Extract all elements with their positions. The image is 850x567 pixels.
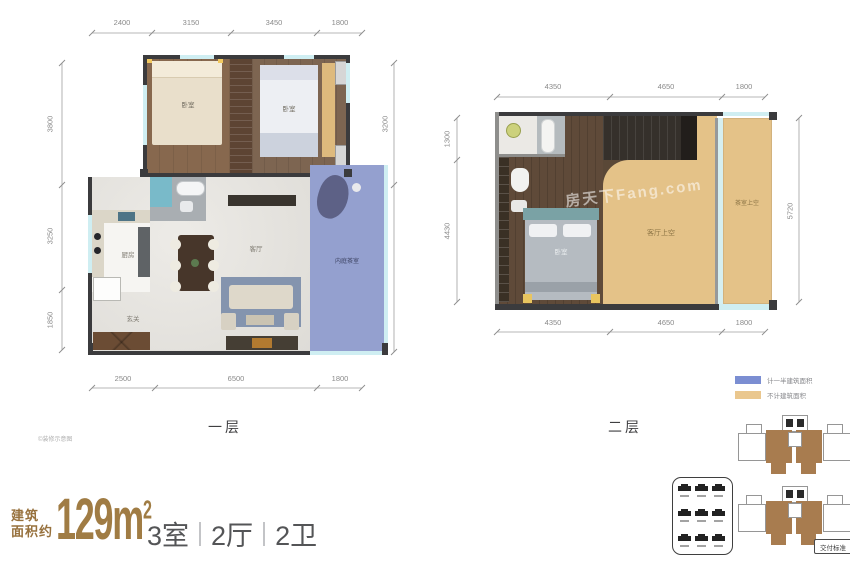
floor1-label: 一层 bbox=[208, 417, 242, 437]
building-icon bbox=[695, 534, 708, 543]
pillar bbox=[88, 343, 93, 355]
pillar bbox=[769, 300, 777, 310]
wing bbox=[746, 424, 762, 434]
wall bbox=[88, 351, 310, 355]
second-floor-plan: 客厅上空 卧室 茶室上空 bbox=[495, 112, 777, 312]
wall bbox=[495, 304, 719, 310]
building-number bbox=[680, 545, 689, 547]
wall bbox=[143, 55, 350, 59]
dim-label: 1800 bbox=[736, 318, 753, 327]
floorplan-sheet: 2400 3150 3450 1800 2500 6500 1800 3800 … bbox=[0, 0, 850, 567]
sofa bbox=[229, 285, 293, 309]
dim-label: 1850 bbox=[46, 312, 55, 329]
window bbox=[723, 112, 772, 116]
laundry-basket bbox=[506, 123, 521, 138]
staircase bbox=[230, 57, 252, 175]
building-number bbox=[680, 520, 689, 522]
dim-label: 4430 bbox=[443, 223, 452, 240]
building-icon bbox=[695, 509, 708, 518]
building-icon bbox=[678, 534, 691, 543]
kitchen-island bbox=[138, 227, 150, 277]
dim-label: 4650 bbox=[658, 318, 675, 327]
armchair bbox=[284, 313, 299, 330]
dim-label: 2400 bbox=[114, 18, 131, 27]
pillow bbox=[563, 224, 591, 237]
wing bbox=[738, 504, 766, 532]
pillar bbox=[769, 112, 777, 120]
room-label: 卧室 bbox=[555, 246, 568, 256]
wall bbox=[495, 112, 499, 308]
terrace-void-area bbox=[723, 118, 772, 304]
dim-label: 4350 bbox=[545, 82, 562, 91]
headboard bbox=[523, 208, 599, 220]
dim-label: 1800 bbox=[736, 82, 753, 91]
dim-label: 1800 bbox=[332, 18, 349, 27]
desk-bench bbox=[322, 63, 335, 157]
legend-label: 计一半建筑面积 bbox=[767, 375, 813, 385]
centerpiece bbox=[191, 259, 199, 267]
window bbox=[719, 304, 772, 310]
armchair bbox=[221, 313, 236, 330]
sink bbox=[180, 201, 193, 212]
first-floor-plan: 卧室 卧室 内庭茶室 厨房 bbox=[88, 55, 388, 355]
fridge bbox=[93, 277, 121, 301]
kitchen-sink bbox=[118, 212, 135, 221]
pillar bbox=[140, 169, 148, 177]
living-void-area bbox=[697, 116, 717, 160]
building-number bbox=[680, 495, 689, 497]
building-icon bbox=[678, 484, 691, 493]
core bbox=[788, 503, 802, 518]
delivery-standard-tag: 交付标准 bbox=[814, 539, 850, 554]
dim-label: 4650 bbox=[658, 82, 675, 91]
building-number bbox=[697, 520, 706, 522]
building-number bbox=[697, 545, 706, 547]
baths-count: 2卫 bbox=[275, 514, 317, 553]
pillar bbox=[344, 169, 352, 177]
floor-lamp bbox=[591, 294, 600, 303]
building-icon bbox=[678, 509, 691, 518]
wing bbox=[827, 424, 843, 434]
dim-label: 3250 bbox=[46, 228, 55, 245]
divider bbox=[263, 522, 265, 546]
bathtub bbox=[176, 181, 205, 196]
room-label: 内庭茶室 bbox=[335, 256, 359, 265]
area-prefix-line2: 面积约 bbox=[11, 524, 53, 540]
room-label: 玄关 bbox=[127, 313, 140, 323]
legend: 计一半建筑面积 不计建筑面积 bbox=[735, 373, 813, 401]
dim-label: 5720 bbox=[786, 203, 795, 220]
dim-label: 4350 bbox=[545, 318, 562, 327]
dim-label: 3450 bbox=[266, 18, 283, 27]
building-icon bbox=[712, 534, 725, 543]
window bbox=[180, 55, 214, 59]
wing bbox=[827, 495, 843, 505]
tv-console bbox=[228, 195, 296, 206]
wing bbox=[746, 495, 762, 505]
legend-swatch-no-area bbox=[735, 391, 761, 399]
kitchen-counter bbox=[92, 223, 104, 277]
wing bbox=[823, 433, 850, 461]
room-label: 茶室上空 bbox=[735, 198, 759, 207]
window bbox=[143, 85, 147, 145]
area-number: 129m bbox=[56, 487, 143, 552]
building-number bbox=[697, 495, 706, 497]
dim-label: 2500 bbox=[115, 374, 132, 383]
dim-label: 1300 bbox=[443, 131, 452, 148]
rooms-count: 3室 bbox=[147, 514, 189, 553]
bathtub bbox=[541, 119, 555, 153]
legend-label: 不计建筑面积 bbox=[767, 390, 806, 400]
dim-label: 3150 bbox=[183, 18, 200, 27]
unit-layout: 3室 2厅 2卫 bbox=[147, 514, 317, 553]
entry-cabinet bbox=[93, 332, 150, 350]
keyplate-upper bbox=[738, 415, 850, 479]
area-value: 129m2 bbox=[56, 486, 151, 553]
pillow bbox=[529, 224, 557, 237]
building-icon bbox=[712, 484, 725, 493]
highlighted-unit bbox=[771, 463, 786, 474]
stair-landing bbox=[681, 116, 697, 160]
building-icon bbox=[695, 484, 708, 493]
dining-chairs bbox=[170, 239, 181, 250]
tv-panel bbox=[252, 338, 272, 348]
dim-label: 1800 bbox=[332, 374, 349, 383]
halls-count: 2厅 bbox=[211, 514, 253, 553]
floor2-label: 二层 bbox=[608, 417, 642, 437]
wardrobe bbox=[499, 157, 509, 302]
shower bbox=[150, 177, 172, 207]
window bbox=[384, 165, 388, 351]
wing bbox=[738, 433, 766, 461]
wing bbox=[823, 504, 850, 532]
disclaimer-note: ©装修示意图 bbox=[38, 434, 72, 443]
room-label: 客厅上空 bbox=[647, 228, 675, 238]
dim-label: 3800 bbox=[46, 116, 55, 133]
highlighted-unit bbox=[771, 534, 786, 545]
area-prefix: 建筑 面积约 bbox=[11, 508, 53, 541]
room-label: 厨房 bbox=[122, 249, 135, 259]
building-number bbox=[714, 545, 723, 547]
room-label: 卧室 bbox=[283, 103, 296, 113]
coffee-table bbox=[246, 315, 274, 325]
highlighted-unit bbox=[801, 463, 816, 474]
legend-swatch-half-area bbox=[735, 376, 761, 384]
toilet bbox=[511, 168, 529, 192]
divider bbox=[199, 522, 201, 546]
site-plan bbox=[672, 477, 733, 555]
side-table bbox=[352, 183, 361, 192]
dim-label: 6500 bbox=[228, 374, 245, 383]
cooktop bbox=[94, 233, 101, 240]
room-label: 卧室 bbox=[182, 99, 195, 109]
bed-runner bbox=[525, 282, 597, 292]
window bbox=[346, 63, 350, 103]
building-number bbox=[714, 520, 723, 522]
building-number bbox=[714, 495, 723, 497]
window bbox=[310, 351, 388, 355]
window bbox=[88, 215, 92, 273]
pillar bbox=[382, 343, 388, 355]
floor-lamp bbox=[523, 294, 532, 303]
area-prefix-line1: 建筑 bbox=[11, 508, 53, 524]
building-icon bbox=[712, 509, 725, 518]
window bbox=[284, 55, 314, 59]
room-label: 客厅 bbox=[250, 243, 263, 253]
core bbox=[788, 432, 802, 447]
